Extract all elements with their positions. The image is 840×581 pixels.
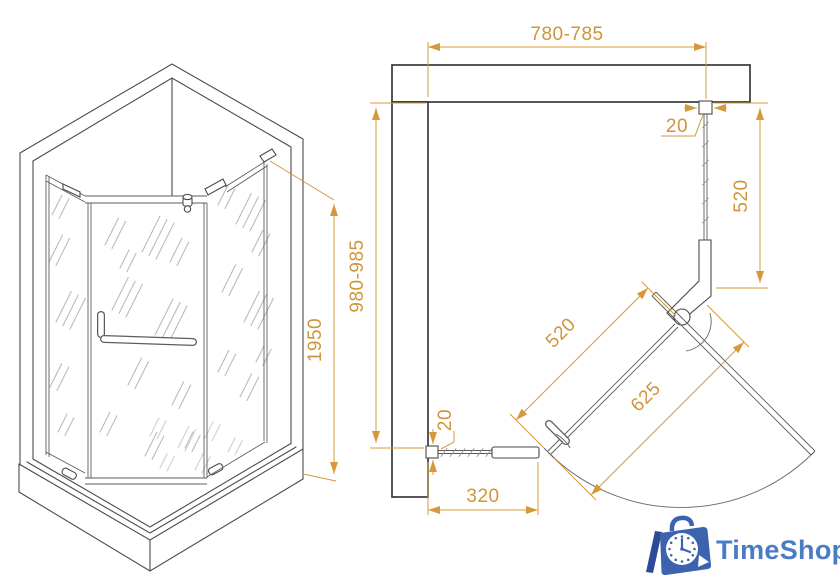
top-gap-label: 20: [666, 116, 688, 137]
drawing-canvas: 1950: [0, 0, 840, 581]
plan-left-wall: [392, 102, 428, 497]
top-width-label: 780-785: [530, 24, 603, 45]
plan-top-wall: [392, 65, 750, 102]
door-swing-arc: [549, 453, 813, 508]
top-wall-bracket: [699, 101, 712, 114]
left-wall-bracket: [426, 446, 438, 458]
adjustment-ticks: [441, 449, 492, 457]
plan-door-handle-icon: [549, 424, 570, 448]
door-pivot-point: [674, 309, 690, 325]
wall-mount-bracket: [260, 149, 276, 162]
dimension-door-width: 625: [554, 305, 749, 500]
right-panel-label: 520: [731, 179, 752, 212]
adjustment-ticks: [703, 122, 709, 223]
panel-profile: [492, 447, 539, 458]
bottom-gap-label: 20: [435, 409, 456, 431]
diagonal-panel-label: 520: [542, 314, 580, 352]
dimension-bottom-panel: 320: [428, 462, 538, 515]
iso-left-fixed-panel: [46, 175, 85, 473]
door-width-label: 625: [627, 378, 665, 416]
iso-glass-assembly: [46, 149, 276, 484]
glass-hatch-marks: [49, 185, 273, 473]
timeshop-logo: TimeShop: [646, 518, 840, 575]
timeshop-logo-icon: [646, 518, 711, 575]
iso-walls: [20, 64, 303, 465]
door-foot-left: [61, 467, 78, 480]
shower-enclosure-technical-drawing: 1950: [0, 0, 840, 581]
iso-header-bar: [85, 179, 226, 212]
dimension-bottom-gap: 20: [433, 409, 456, 475]
clock-icon: [666, 533, 698, 565]
bottom-panel-label: 320: [466, 486, 499, 507]
timeshop-logo-text: TimeShop: [716, 535, 840, 565]
side-depth-label: 980-985: [347, 239, 368, 312]
iso-view: 1950: [19, 64, 336, 571]
bend-profile: [667, 240, 711, 324]
dimension-diagonal-panel: 520: [510, 282, 676, 448]
iso-height-label: 1950: [305, 318, 326, 362]
door-foot-right: [207, 463, 224, 476]
dimension-right-panel: 520: [714, 103, 768, 288]
shower-tray: [19, 444, 303, 571]
right-clamp-bracket: [205, 179, 226, 195]
door-pivot-hinge: [183, 194, 192, 212]
plan-view: 780-785 20 520 980-985: [347, 24, 815, 515]
towel-bar-handle-icon: [101, 315, 193, 342]
dimension-top-gap: 20: [661, 108, 727, 137]
